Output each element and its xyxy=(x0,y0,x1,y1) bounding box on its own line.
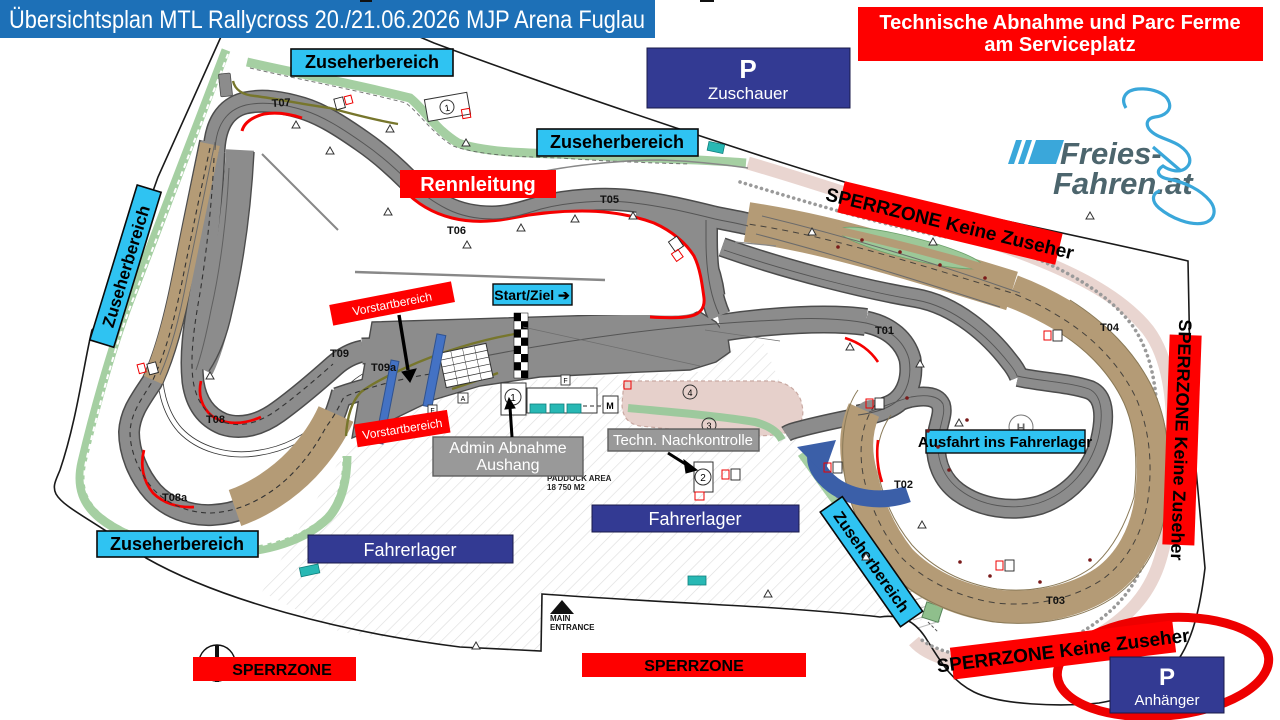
svg-text:T06: T06 xyxy=(447,225,466,237)
svg-text:Übersichtsplan MTL Rallycross: Übersichtsplan MTL Rallycross 20./21.06.… xyxy=(9,6,645,34)
svg-text:Zuschauer: Zuschauer xyxy=(708,84,789,103)
svg-text:T09a: T09a xyxy=(371,362,397,374)
svg-text:P: P xyxy=(1159,664,1175,691)
svg-text:SPERRZONE: SPERRZONE xyxy=(232,662,332,679)
svg-text:T04: T04 xyxy=(1100,322,1120,334)
svg-text:Fahrerlager: Fahrerlager xyxy=(648,509,741,529)
svg-text:T08a: T08a xyxy=(162,492,188,504)
svg-text:T05: T05 xyxy=(600,194,619,206)
svg-text:T08: T08 xyxy=(206,414,225,426)
svg-text:Fahrerlager: Fahrerlager xyxy=(363,540,456,560)
svg-text:T07: T07 xyxy=(271,97,291,110)
svg-text:Admin Abnahme: Admin Abnahme xyxy=(449,440,567,457)
svg-text:4: 4 xyxy=(687,388,692,398)
svg-text:Anhänger: Anhänger xyxy=(1134,692,1199,709)
svg-text:18 750 M2: 18 750 M2 xyxy=(547,483,585,492)
svg-text:Ausfahrt ins Fahrerlager: Ausfahrt ins Fahrerlager xyxy=(918,434,1092,451)
svg-text:T03: T03 xyxy=(1046,595,1065,607)
svg-text:P: P xyxy=(739,54,756,84)
svg-text:Zuseherbereich: Zuseherbereich xyxy=(550,132,684,152)
svg-text:SPERRZONE: SPERRZONE xyxy=(644,658,744,675)
svg-text:Rennleitung: Rennleitung xyxy=(420,174,536,196)
svg-text:Zuseherbereich: Zuseherbereich xyxy=(305,52,439,72)
svg-text:A: A xyxy=(461,396,466,403)
svg-text:am Serviceplatz: am Serviceplatz xyxy=(984,34,1135,56)
svg-text:Techn. Nachkontrolle: Techn. Nachkontrolle xyxy=(613,432,753,449)
svg-text:M: M xyxy=(606,401,614,411)
svg-text:T02: T02 xyxy=(894,479,913,491)
svg-text:MAIN: MAIN xyxy=(550,614,571,623)
svg-text:Zuseherbereich: Zuseherbereich xyxy=(110,534,244,554)
svg-text:2: 2 xyxy=(700,473,706,484)
svg-text:T01: T01 xyxy=(875,325,894,337)
svg-text:ENTRANCE: ENTRANCE xyxy=(550,623,595,632)
svg-text:Technische Abnahme und Parc Fe: Technische Abnahme und Parc Ferme xyxy=(879,12,1240,34)
svg-text:F: F xyxy=(563,378,567,385)
svg-text:Start/Ziel ➔: Start/Ziel ➔ xyxy=(494,287,570,303)
svg-text:Aushang: Aushang xyxy=(476,457,539,474)
svg-text:T09: T09 xyxy=(330,348,349,360)
